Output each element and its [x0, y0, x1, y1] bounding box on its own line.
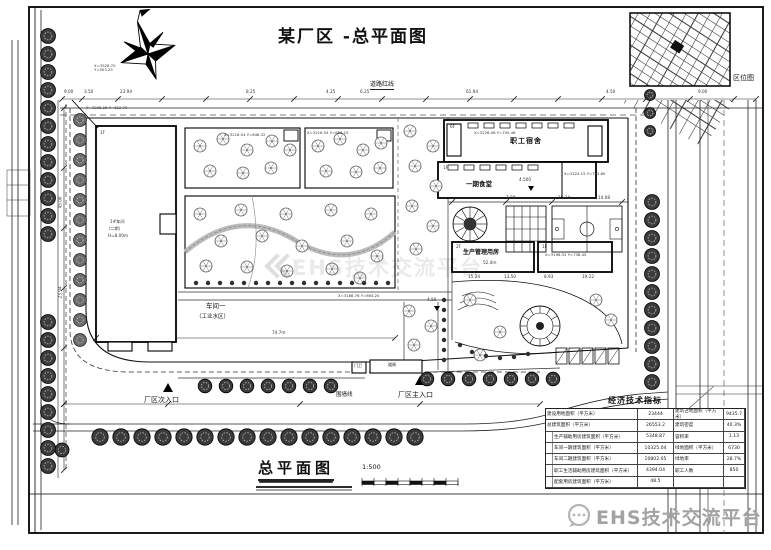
table-cell: 车间一期建筑面积（平方米） — [546, 443, 638, 454]
tree-icon — [74, 294, 87, 307]
tree-icon — [215, 235, 227, 247]
tree-icon — [55, 443, 69, 457]
tree-icon — [194, 208, 206, 220]
shrub-icon — [442, 328, 446, 332]
dim: 61.94 — [466, 90, 478, 95]
tree-icon — [303, 379, 317, 393]
coord-note: X=3196.32 Y=738.45 — [545, 253, 586, 257]
mgmt-dim-label: 52.4m — [483, 261, 496, 266]
shrub-icon — [206, 281, 210, 285]
tree-icon — [260, 429, 276, 445]
tree-icon — [357, 144, 369, 156]
tree-icon — [200, 260, 212, 272]
coord-note: X=3528.70 Y=503.25 — [94, 64, 130, 73]
table-cell: 生产辅助用房建筑面积（平方米） — [546, 432, 638, 443]
dorm-floor-marker: 6F — [450, 125, 455, 130]
tree-icon — [41, 155, 56, 170]
tree-icon — [407, 429, 423, 445]
table-cell: 建设用地面积（平方米） — [546, 409, 638, 420]
table-cell: 车间二期建筑面积（平方米） — [546, 454, 638, 465]
table-cell: 10325.04 — [638, 443, 674, 454]
tree-icon — [645, 285, 660, 300]
tree-icon — [74, 214, 87, 227]
elevation-canteen: 4.500 — [519, 178, 531, 183]
table-cell: 建筑密度 — [674, 420, 724, 431]
shrub-icon — [242, 281, 246, 285]
tree-icon — [325, 204, 337, 216]
tree-icon — [645, 195, 660, 210]
mgmt-floor-marker: 2F — [456, 245, 461, 250]
b1-note-1: 1#车间 — [110, 220, 125, 225]
tree-icon — [241, 261, 253, 273]
tree-icon — [645, 267, 660, 282]
tree-icon — [281, 429, 297, 445]
tree-icon — [645, 303, 660, 318]
tree-icon — [74, 134, 87, 147]
tree-icon — [320, 165, 332, 177]
dim: 9.00 — [64, 90, 73, 95]
tree-icon — [408, 339, 420, 351]
tree-icon — [219, 379, 233, 393]
tree-icon — [645, 231, 660, 246]
tree-icon — [441, 372, 455, 386]
table-title: 经济技术指标 — [608, 396, 662, 405]
tree-icon — [282, 379, 296, 393]
gate-bar-label: 道闸 — [388, 363, 396, 368]
tree-icon — [266, 135, 278, 147]
tree-icon — [41, 83, 56, 98]
tree-icon — [425, 320, 437, 332]
dim: 9.00 — [698, 90, 707, 95]
ehs-logo-icon — [564, 500, 594, 530]
tree-icon — [237, 167, 249, 179]
tree-icon — [197, 429, 213, 445]
workshop-label: 车间一 — [206, 303, 226, 310]
tree-icon — [41, 351, 56, 366]
tree-icon — [155, 429, 171, 445]
dim: 3.50 — [84, 90, 93, 95]
center-watermark-chevron-icon — [268, 254, 290, 276]
tree-icon — [74, 274, 87, 287]
b1-note-2: （二期） — [106, 227, 123, 232]
guard-house-label: 门卫 — [354, 364, 362, 369]
table-cell: 23444 — [638, 409, 674, 420]
shrub-icon — [442, 358, 446, 362]
shrub-icon — [254, 281, 258, 285]
dim: 45.00 — [59, 196, 64, 208]
hedge-trees — [74, 114, 87, 347]
scale-label: 1:500 — [362, 464, 381, 471]
annex-floor-marker: 1F — [542, 245, 547, 250]
tree-icon — [280, 208, 292, 220]
table-cell: 绿地率 — [674, 454, 724, 465]
workshop-dim-label: 74.7m — [272, 331, 285, 336]
coord-note: X=3188.76 Y=664.20 — [338, 294, 379, 298]
shrub-icon — [458, 343, 462, 347]
location-map-label: 区位图 — [733, 74, 754, 82]
coord-note: X=3216.54 Y=648.32 — [224, 133, 265, 137]
tree-icon — [386, 429, 402, 445]
tree-icon — [41, 101, 56, 116]
tree-icon — [645, 213, 660, 228]
tree-icon — [41, 369, 56, 384]
tree-icon — [265, 162, 277, 174]
tree-icon — [494, 326, 506, 338]
dim: 4.50 — [606, 90, 615, 95]
tree-icon — [41, 137, 56, 152]
workshop-sub-label: （工业水区） — [196, 314, 229, 320]
tree-icon — [218, 429, 234, 445]
table-cell: 28.7% — [724, 454, 745, 465]
shrub-icon — [484, 354, 488, 358]
table-cell — [724, 477, 745, 488]
table-cell: 1.13 — [724, 432, 745, 443]
table-cell: 建筑占地面积（平方米） — [674, 409, 724, 420]
tree-icon — [284, 144, 296, 156]
dim: 23.94 — [120, 90, 132, 95]
shrub-icon — [442, 338, 446, 342]
tree-icon — [41, 441, 56, 456]
b1-floor-marker: 1F — [100, 131, 105, 136]
tree-icon — [41, 387, 56, 402]
coord-note: X=3208.25 Y=612.70 — [86, 106, 127, 110]
tree-icon — [365, 429, 381, 445]
tree-icon — [406, 200, 418, 212]
dim: 6.25 — [360, 90, 369, 95]
tree-icon — [430, 180, 442, 192]
dim: 19.22 — [582, 275, 594, 280]
tree-icon — [235, 204, 247, 216]
tree-icon — [41, 405, 56, 420]
shrub-icon — [218, 281, 222, 285]
tree-icon — [74, 314, 87, 327]
tree-icon — [645, 357, 660, 372]
tree-icon — [41, 191, 56, 206]
table-cell: 容积率 — [674, 432, 724, 443]
road-redline-label: 道路红线 — [370, 82, 394, 90]
tree-icon — [74, 154, 87, 167]
dim: 8.93 — [544, 275, 553, 280]
tree-icon — [645, 108, 656, 119]
ehs-watermark: EHS技术交流平台 — [596, 503, 762, 530]
dim: 15.24 — [558, 196, 570, 201]
tree-icon — [41, 173, 56, 188]
tree-icon — [365, 208, 377, 220]
elevation-plaza: 4.50 — [427, 298, 436, 303]
shrub-icon — [442, 298, 446, 302]
table-cell: 4394.04 — [638, 465, 674, 476]
table-cell — [674, 477, 724, 488]
tree-icon — [462, 372, 476, 386]
north-compass-icon — [108, 4, 183, 88]
tree-icon — [427, 140, 439, 152]
tree-icon — [374, 162, 386, 174]
tree-icon — [74, 174, 87, 187]
tree-icon — [204, 165, 216, 177]
shrub-icon — [230, 281, 234, 285]
tech-indicator-table: 建设用地面积（平方米）23444建筑占地面积（平方米）9435.7 总建筑面积（… — [545, 408, 746, 489]
tree-icon — [41, 47, 56, 62]
shrub-icon — [470, 350, 474, 354]
shrub-icon — [194, 281, 198, 285]
shrub-icon — [526, 352, 530, 356]
table-cell: 40.3% — [724, 420, 745, 431]
coord-note: X=3226.08 Y=705.46 — [474, 131, 515, 135]
tree-icon — [41, 227, 56, 242]
side-gate-label: 厂区次入口 — [144, 396, 179, 404]
tree-icon — [546, 372, 560, 386]
table-cell: 5348.87 — [638, 432, 674, 443]
tree-icon — [645, 339, 660, 354]
shrub-icon — [442, 318, 446, 322]
dim: 8.25 — [246, 90, 255, 95]
tree-icon — [176, 429, 192, 445]
tree-icon — [525, 372, 539, 386]
tree-icon — [645, 249, 660, 264]
tree-icon — [324, 379, 338, 393]
coord-note: X=3216.54 Y=686.15 — [307, 131, 348, 135]
tree-icon — [296, 240, 308, 252]
tree-icon — [194, 140, 206, 152]
tree-icon — [323, 429, 339, 445]
tree-icon — [302, 429, 318, 445]
tree-icon — [41, 209, 56, 224]
tree-icon — [404, 125, 416, 137]
b1-note-3: H=8.00m — [108, 234, 128, 239]
tree-icon — [74, 254, 87, 267]
tree-icon — [483, 372, 497, 386]
tree-icon — [240, 379, 254, 393]
tree-icon — [350, 166, 362, 178]
tree-icon — [645, 126, 656, 137]
tree-icon — [241, 144, 253, 156]
tree-icon — [41, 459, 56, 474]
tree-icon — [645, 321, 660, 336]
tree-icon — [427, 220, 439, 232]
tree-icon — [41, 29, 56, 44]
table-cell: 26553.2 — [638, 420, 674, 431]
shrub-icon — [512, 355, 516, 359]
tree-icon — [92, 429, 108, 445]
tree-icon — [41, 423, 56, 438]
coord-note: X=3224.15 Y=742.60 — [564, 172, 605, 176]
dim: 7.88 — [506, 196, 515, 201]
tree-icon — [375, 137, 387, 149]
tree-icon — [239, 429, 255, 445]
tree-icon — [403, 305, 415, 317]
left-legend-grid — [7, 170, 30, 216]
table-cell: 职工人数 — [674, 465, 724, 476]
sheet-title: 某厂区 -总平面图 — [278, 28, 428, 48]
table-cell: 职工生活辅助用房建筑面积（平方米） — [546, 465, 638, 476]
tree-icon — [41, 119, 56, 134]
tree-icon — [256, 230, 268, 242]
tree-icon — [134, 429, 150, 445]
tree-icon — [645, 375, 660, 390]
table-cell: 850 — [724, 465, 745, 476]
site-plan-sheet: 某厂区 -总平面图 区位图 道路红线 职工宿舍 一期食堂 生产管理用房 52.4… — [0, 0, 771, 550]
tree-icon — [74, 334, 87, 347]
tree-icon — [74, 234, 87, 247]
dim: 23.94 — [59, 286, 64, 298]
dorm-label: 职工宿舍 — [510, 137, 542, 145]
shrub-icon — [278, 281, 282, 285]
tree-icon — [605, 314, 617, 326]
shrub-icon — [442, 308, 446, 312]
tree-icon — [74, 194, 87, 207]
tree-icon — [74, 114, 87, 127]
tree-icon — [409, 160, 421, 172]
dim: 4.25 — [326, 90, 335, 95]
tree-icon — [504, 372, 518, 386]
tree-icon — [198, 379, 212, 393]
tree-icon — [41, 315, 56, 330]
table-cell: 10802.05 — [638, 454, 674, 465]
tree-icon — [344, 429, 360, 445]
main-gate-label: 厂区主入口 — [398, 391, 433, 399]
dim: 13.50 — [504, 275, 516, 280]
center-watermark: EHS技术交流平台 — [292, 252, 483, 282]
tree-icon — [312, 140, 324, 152]
tree-icon — [261, 379, 275, 393]
tree-icon — [341, 235, 353, 247]
tree-icon — [464, 294, 476, 306]
tree-icon — [113, 429, 129, 445]
location-map-mask — [556, 0, 771, 100]
shrub-icon — [498, 356, 502, 360]
shrub-icon — [266, 281, 270, 285]
table-cell: 6730 — [724, 443, 745, 454]
table-cell: 9435.7 — [724, 409, 745, 420]
table-cell: 总建筑面积（平方米） — [546, 420, 638, 431]
table-cell: 48.5 — [638, 477, 674, 488]
table-cell: 配套用房建筑面积（平方米） — [546, 477, 638, 488]
dim: 14.08 — [598, 196, 610, 201]
fence-label: 围墙线 — [336, 392, 353, 398]
tree-icon — [420, 372, 434, 386]
tree-icon — [41, 65, 56, 80]
canteen-floor-marker: 1F — [443, 166, 448, 171]
tree-icon — [590, 294, 602, 306]
tree-icon — [41, 333, 56, 348]
shrub-icon — [442, 348, 446, 352]
plan-title: 总平面图 — [258, 460, 334, 481]
canteen-label: 一期食堂 — [466, 181, 492, 188]
table-cell: 绿地面积（平方米） — [674, 443, 724, 454]
